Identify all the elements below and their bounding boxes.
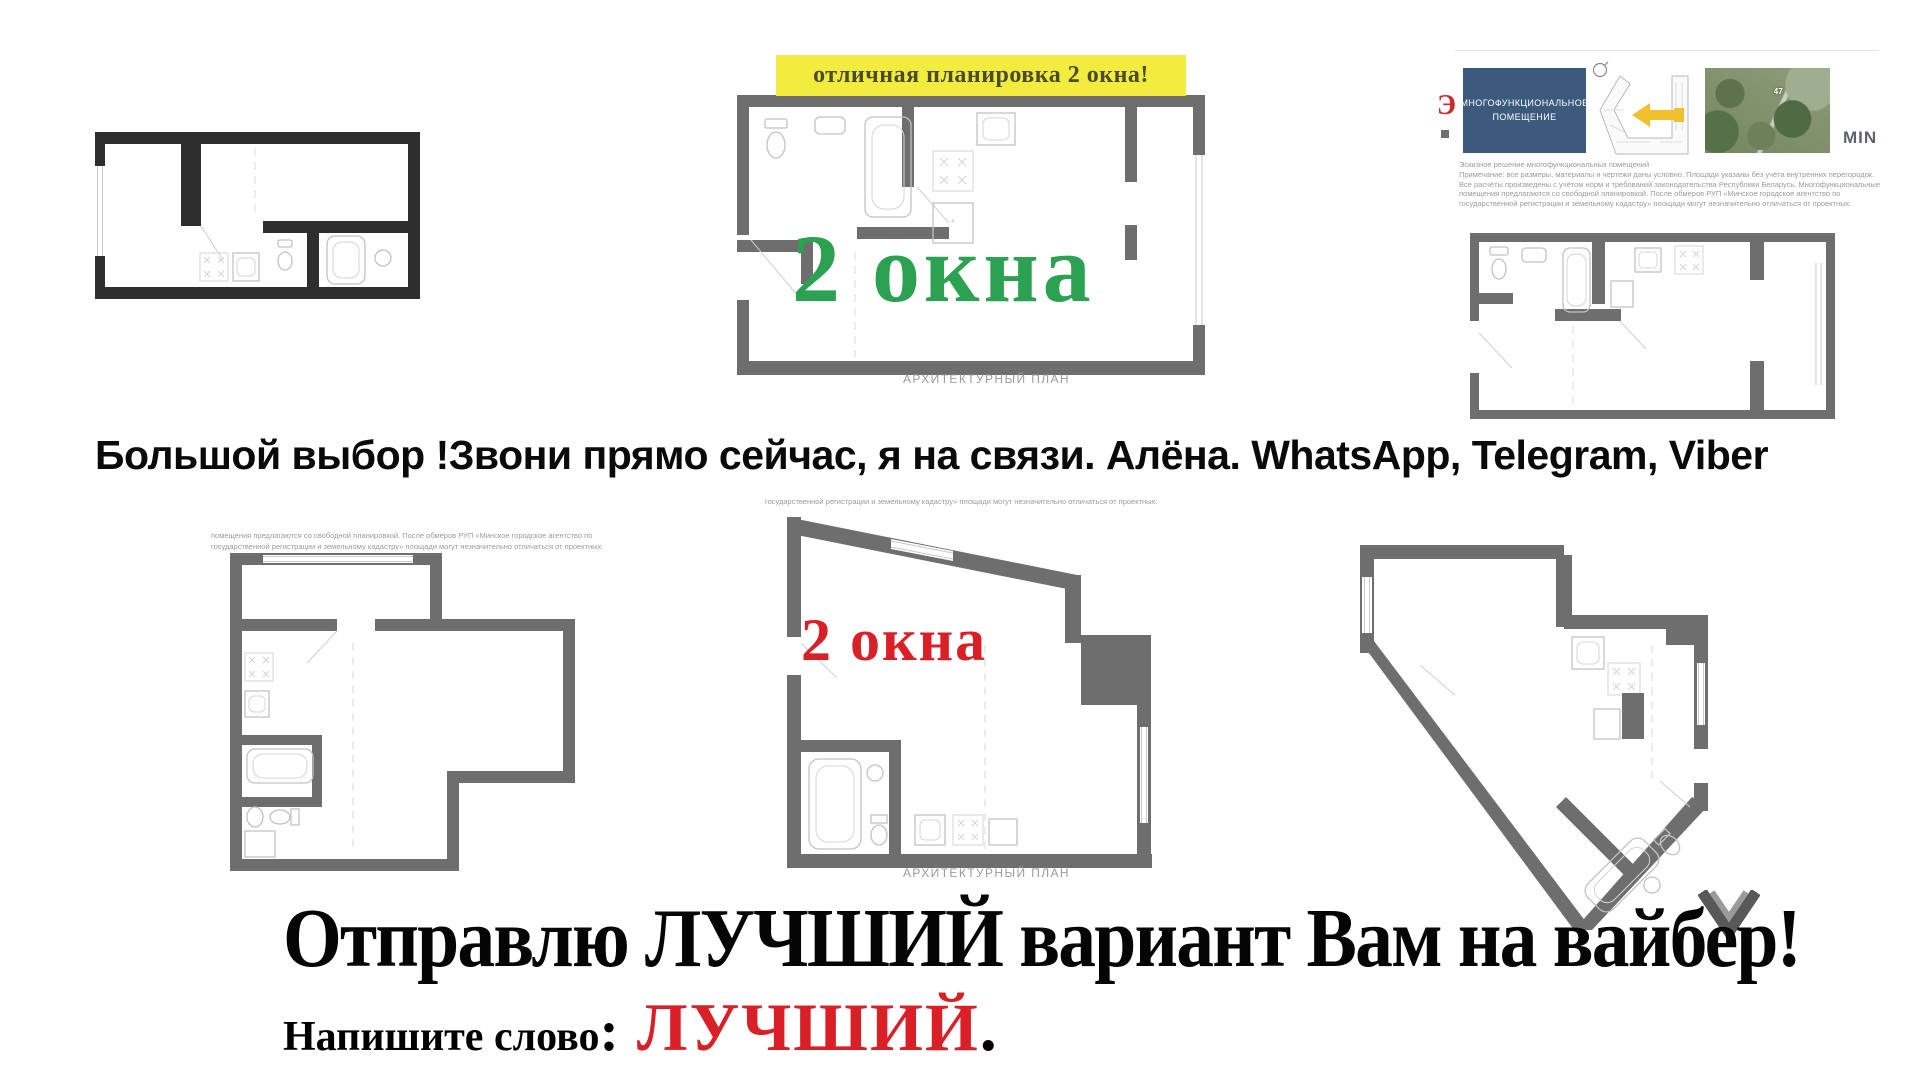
toilet-icon: [270, 809, 299, 825]
counter-icon: [1611, 281, 1633, 307]
counter-icon: [245, 831, 275, 857]
bathtub-icon: [247, 749, 313, 783]
sink-icon: [247, 807, 263, 827]
floor-plan-bottom-left-drawing: [185, 553, 575, 882]
footer-cta: Напишите слово:ЛУЧШИЙ.: [283, 988, 997, 1067]
kitchen-sink-icon: [1635, 248, 1661, 272]
developer-logo-fragment: Э: [1437, 92, 1456, 120]
two-windows-label-green: 2 окна: [792, 221, 1095, 317]
footer-colon: :: [600, 998, 619, 1063]
floor-plan-top-right: [1470, 233, 1835, 419]
stove-icon: [1675, 246, 1703, 274]
plan-caption-top: АРХИТЕКТУРНЫЙ ПЛАН: [903, 372, 1070, 386]
toilet-icon: [278, 240, 292, 270]
floor-plan-top-right-drawing: [1470, 233, 1835, 419]
card-note-line: Все расчёты произведены с учётом норм и …: [1459, 180, 1877, 190]
card-title-line1: МНОГОФУНКЦИОНАЛЬНОЕ: [1461, 97, 1589, 111]
two-windows-label-red: 2 окна: [801, 610, 987, 670]
bathtub-icon: [327, 236, 365, 284]
stove-icon: [200, 253, 228, 281]
bathtub-icon: [809, 759, 861, 849]
stove-icon: [953, 815, 983, 845]
card-divider: [1455, 50, 1878, 51]
sink-icon: [1522, 248, 1546, 262]
counter-icon: [989, 819, 1017, 845]
headline: Большой выбор !Звони прямо сейчас, я на …: [95, 433, 1768, 478]
card-note-line: помещения предлагаются со свободной план…: [1459, 189, 1877, 199]
bottom-left-note: помещения предлагаются со свободной план…: [211, 531, 603, 552]
bottom-left-note-line1: помещения предлагаются со свободной план…: [211, 531, 603, 542]
floor-plan-bottom-center: 2 окна: [775, 515, 1165, 870]
bathtub-icon: [1563, 248, 1590, 312]
plan-caption-bottom: АРХИТЕКТУРНЫЙ ПЛАН: [903, 866, 1070, 880]
bottom-left-note-line2: государственной регистрации и земельному…: [211, 542, 603, 553]
aerial-photo: 47: [1705, 68, 1830, 153]
kitchen-sink-icon: [233, 253, 259, 281]
aerial-photo-label: 47: [1774, 87, 1783, 96]
promo-banner-text: отличная планировка 2 окна!: [813, 62, 1149, 89]
card-note-line: государственной регистрации и земельному…: [1459, 199, 1877, 209]
footer-prompt: Напишите слово: [283, 1014, 600, 1060]
promo-banner: отличная планировка 2 окна!: [776, 55, 1186, 96]
sink-icon: [1644, 877, 1660, 893]
building-footprint-plan: [1590, 70, 1702, 158]
floor-plan-top-left: [95, 128, 420, 303]
toilet-icon: [765, 119, 787, 158]
kitchen-sink-icon: [245, 691, 269, 717]
card-title-line2: ПОМЕЩЕНИЕ: [1493, 111, 1557, 125]
sink-icon: [375, 250, 391, 266]
footer-keyword: ЛУЧШИЙ: [637, 989, 980, 1065]
min-label: MIN: [1843, 128, 1877, 148]
stove-icon: [933, 151, 973, 191]
bottom-center-note: государственной регистрации и земельному…: [765, 497, 1157, 508]
footer-headline: Отправлю ЛУЧШИЙ вариант Вам на вайбер!: [283, 897, 1800, 981]
stove-icon: [245, 653, 273, 681]
sink-icon: [867, 765, 883, 781]
floor-plan-top-center: 2 окна: [737, 95, 1205, 375]
card-note: Эскизное решение многофункциональных пом…: [1459, 160, 1877, 209]
kitchen-sink-icon: [977, 113, 1015, 145]
card-title-box: МНОГОФУНКЦИОНАЛЬНОЕ ПОМЕЩЕНИЕ: [1463, 68, 1586, 153]
toilet-icon: [871, 815, 887, 845]
stove-icon: [1608, 663, 1640, 695]
kitchen-sink-icon: [915, 815, 945, 845]
kitchen-sink-icon: [1572, 637, 1604, 669]
sink-icon: [815, 117, 845, 134]
floor-plan-top-left-drawing: [95, 128, 420, 303]
counter-icon: [1594, 709, 1620, 739]
card-note-line: Примечание: все размеры, материалы и чер…: [1459, 170, 1877, 180]
toilet-icon: [1490, 247, 1508, 279]
floor-plan-bottom-right: [1360, 545, 1720, 940]
floor-plan-bottom-right-drawing: [1360, 545, 1720, 940]
floor-plan-bottom-left: [185, 553, 575, 882]
card-note-line: Эскизное решение многофункциональных пом…: [1459, 160, 1877, 170]
footer-period: .: [980, 989, 997, 1065]
floor-plan-bottom-center-drawing: [775, 515, 1165, 870]
info-card: Э МНОГОФУНКЦИОНАЛЬНОЕ ПОМЕЩЕНИЕ 47 MIN Э…: [1437, 45, 1880, 235]
logo-square: [1441, 130, 1449, 138]
